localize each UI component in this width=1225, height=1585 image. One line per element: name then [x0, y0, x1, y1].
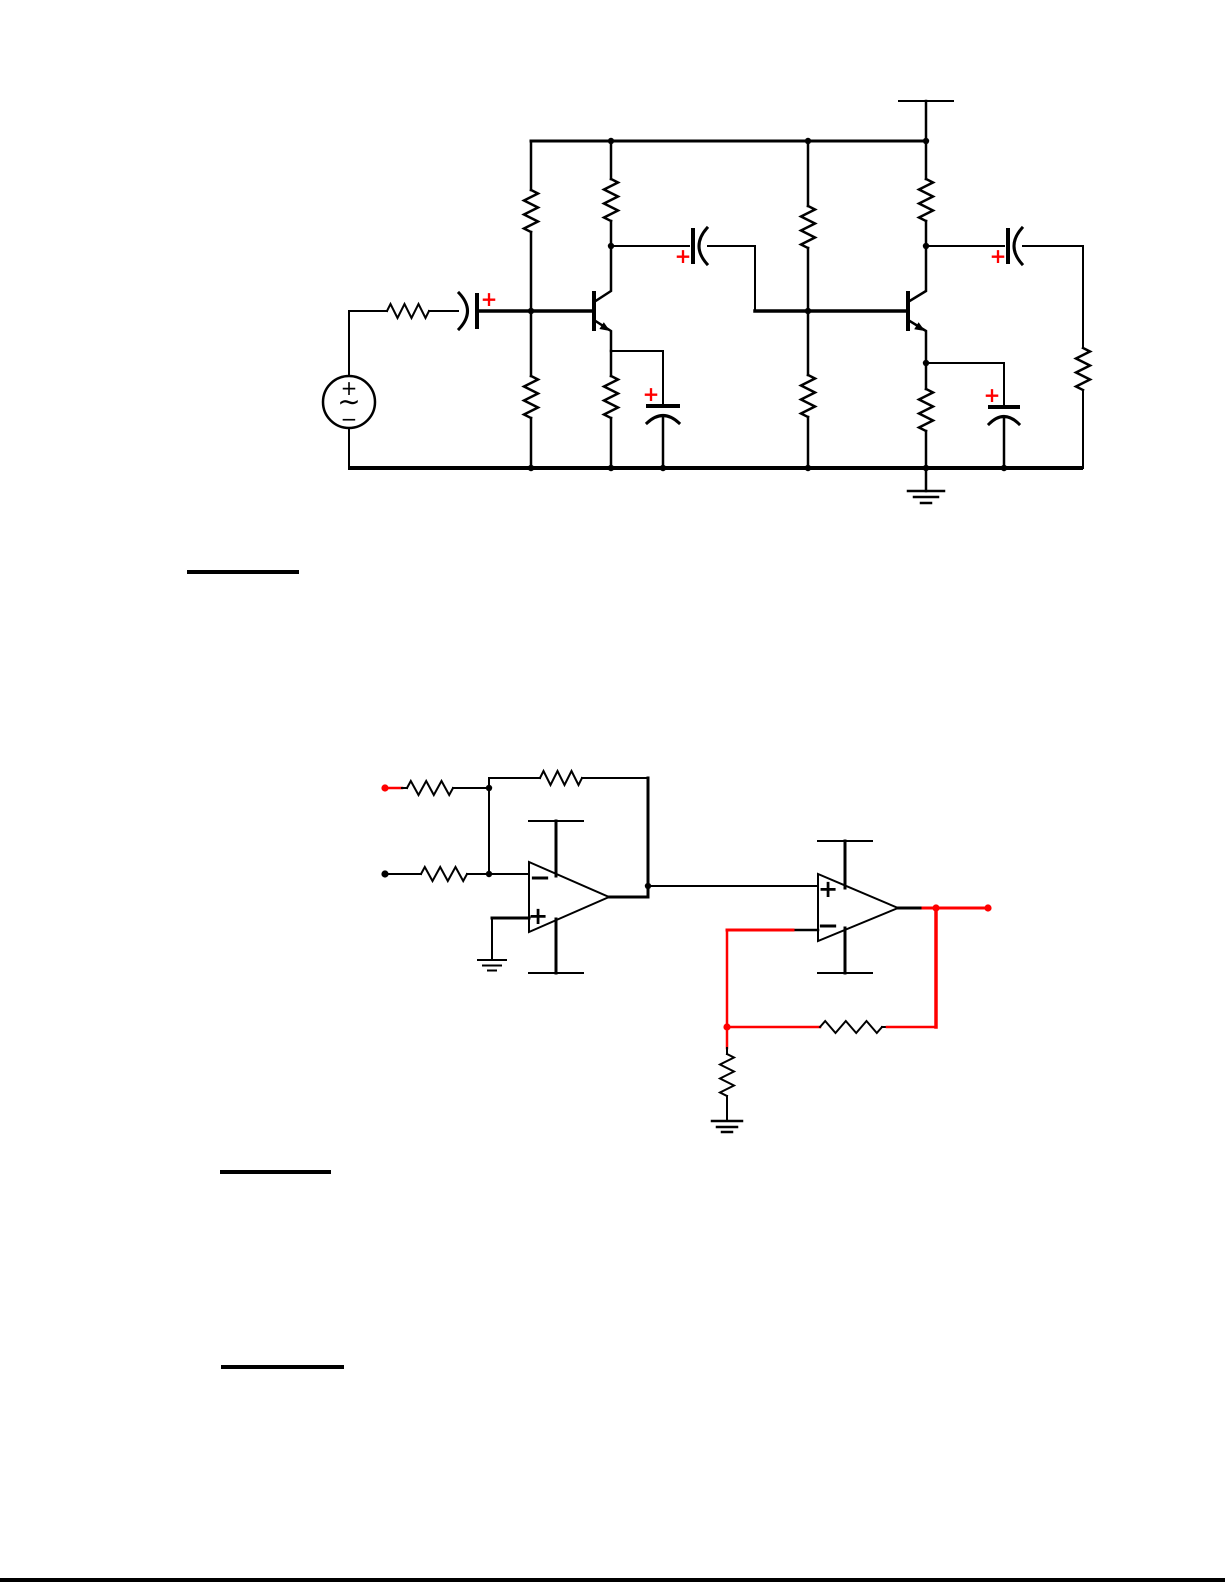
vcc-symbol: [899, 101, 953, 141]
junction-dot: [608, 465, 614, 471]
circuit1-two-stage-bjt-amplifier: + ∼ − +: [323, 101, 1090, 503]
resistor-input-b: [421, 867, 467, 881]
resistor-r1-divider-upper: [524, 141, 538, 311]
opamp2-inverting-label: −: [817, 911, 839, 941]
junction-dot: [923, 243, 929, 249]
circuit2-two-opamp-schematic: − + + −: [381, 771, 991, 1132]
polarity-plus: +: [984, 383, 1001, 407]
junction-dot: [1001, 465, 1007, 471]
resistor-input-a: [407, 781, 453, 795]
junction-dot: [923, 360, 929, 366]
document-page: + ∼ − +: [0, 0, 1225, 1585]
junction-dot: [528, 308, 534, 314]
ac-voltage-source: + ∼ −: [323, 311, 387, 468]
resistor-load: [1076, 348, 1090, 468]
polarity-plus: +: [990, 244, 1007, 268]
transistor-q1-npn: [594, 246, 611, 351]
junction-dot: [923, 138, 929, 144]
polarity-plus: +: [481, 287, 498, 311]
junction-dot: [805, 465, 811, 471]
resistor-zigzag: [604, 179, 618, 221]
junction-dot: [486, 785, 492, 791]
junction-dot: [805, 138, 811, 144]
cap-curved-plate: [459, 293, 468, 329]
q2-collector-lead: [908, 246, 926, 302]
junction-dots: [528, 138, 1007, 471]
resistor-r2-divider-lower: [524, 311, 538, 468]
polarity-plus: +: [675, 244, 692, 268]
resistor-r3-divider-upper: [801, 141, 815, 311]
junction-dot: [608, 243, 614, 249]
transistor-q2-npn: [908, 246, 926, 363]
ground-symbol: [908, 468, 944, 503]
resistor-zigzag: [604, 376, 618, 418]
resistor-re1-emitter: [604, 351, 618, 468]
resistor-feedback-2: [820, 1021, 882, 1033]
capacitor-interstage-coupling: +: [675, 228, 707, 268]
output-terminal: [984, 904, 991, 911]
ground-symbol: [478, 960, 506, 971]
junction-dot: [608, 138, 614, 144]
capacitor-bypass1: +: [643, 382, 680, 468]
junction-dot: [528, 465, 534, 471]
ground-symbol: [712, 1121, 742, 1132]
resistor-r4-divider-lower: [801, 311, 815, 468]
junction-dot: [805, 308, 811, 314]
opamp2-noninverting-label: +: [818, 875, 838, 903]
capacitor-bypass2: +: [984, 383, 1020, 468]
resistor-rc2-collector: [919, 141, 933, 246]
resistor-source: [387, 304, 429, 318]
resistor-zigzag: [801, 206, 815, 248]
opamp1-noninverting-label: +: [528, 902, 548, 930]
opamp-1: − +: [528, 821, 609, 973]
junction-dot: [923, 465, 929, 471]
resistor-zigzag: [524, 376, 538, 418]
resistor-zigzag: [919, 389, 933, 431]
capacitor-input-coupling: +: [459, 287, 497, 329]
opamp1-inverting-label: −: [529, 863, 551, 893]
capacitor-output-coupling: +: [990, 228, 1022, 268]
opamp-2: + −: [817, 841, 898, 973]
resistor-zigzag: [1076, 348, 1090, 390]
resistor-gain: [720, 1054, 734, 1096]
schematic-canvas: + ∼ − +: [0, 0, 1225, 1585]
junction-dot: [486, 871, 492, 877]
resistor-feedback-1: [540, 771, 582, 785]
resistor-re2-emitter: [919, 363, 933, 468]
cap-curved-plate: [699, 228, 707, 264]
junction-dot: [660, 465, 666, 471]
resistor-zigzag: [919, 179, 933, 221]
cap-curved-plate: [1014, 228, 1022, 264]
polarity-plus: +: [643, 382, 660, 406]
q1-collector-lead: [594, 246, 611, 302]
resistor-zigzag: [801, 375, 815, 417]
resistor-rc1-collector: [604, 141, 618, 246]
resistor-zigzag: [524, 190, 538, 232]
junction-dot-red: [932, 904, 939, 911]
